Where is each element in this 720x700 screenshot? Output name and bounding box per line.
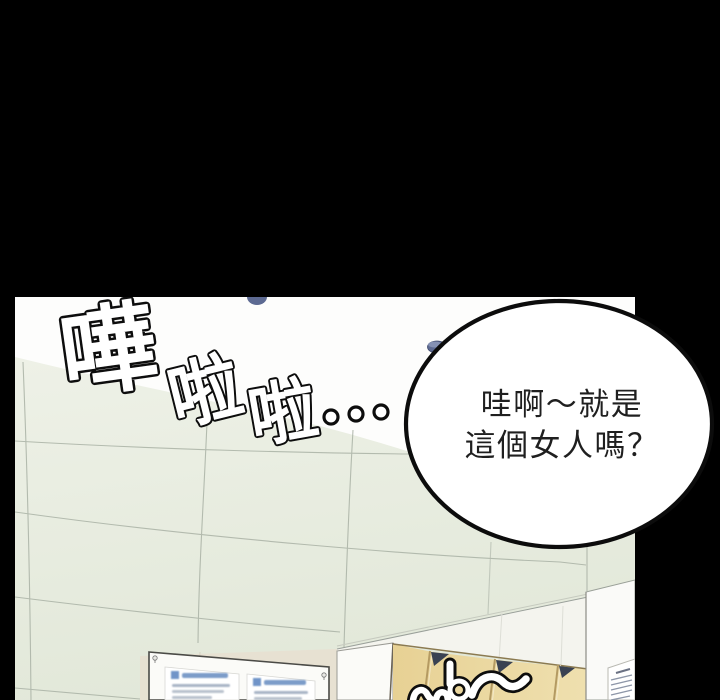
sfx-char-3: 啦: [243, 369, 324, 459]
speech-bubble-shape: [406, 301, 712, 547]
speech-bubble-line2: 這個女人嗎？: [465, 428, 660, 464]
speech-bubble-line1: 哇啊～就是: [481, 387, 644, 423]
locker-side-panel: [337, 643, 393, 700]
screw-icon: [322, 673, 326, 677]
comic-page: 嘩 啦 啦 哇啊～就是 這個女人嗎？: [0, 0, 720, 700]
screw-icon: [153, 656, 157, 660]
speech-bubble: 哇啊～就是 這個女人嗎？: [406, 301, 712, 547]
sfx-char-1: 嘩: [53, 289, 164, 413]
pillar: [586, 580, 635, 700]
comic-panel-art: 嘩 啦 啦 哇啊～就是 這個女人嗎？: [0, 0, 720, 700]
